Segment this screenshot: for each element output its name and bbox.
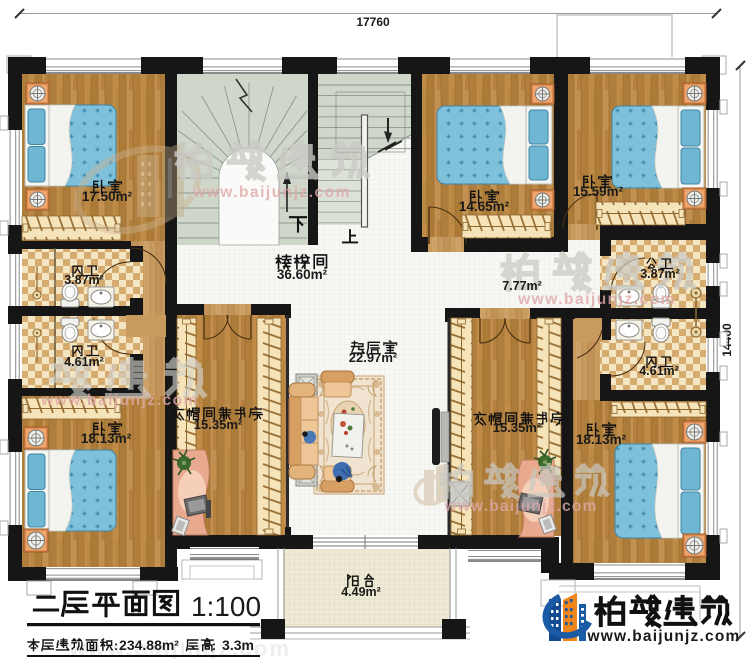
svg-text:22.97m²: 22.97m² — [349, 350, 398, 365]
svg-text:17760: 17760 — [356, 15, 390, 29]
svg-text:14.65m²: 14.65m² — [459, 199, 510, 214]
svg-text:www.baijunjz.com: www.baijunjz.com — [444, 498, 598, 515]
svg-text:3.3m: 3.3m — [222, 637, 254, 653]
svg-text:15.59m²: 15.59m² — [573, 184, 624, 199]
svg-text:www.baijunjz.com: www.baijunjz.com — [587, 628, 741, 645]
svg-text::: : — [212, 638, 216, 653]
svg-text:www.baijunjz.com: www.baijunjz.com — [40, 392, 199, 409]
svg-text:1:100: 1:100 — [191, 591, 261, 622]
svg-text:4.49m²: 4.49m² — [341, 585, 381, 599]
svg-text:www.baijunjz.com: www.baijunjz.com — [192, 184, 351, 201]
svg-text:4.61m²: 4.61m² — [64, 355, 104, 369]
svg-text:234.88m²: 234.88m² — [119, 637, 179, 653]
svg-text:17.50m²: 17.50m² — [82, 189, 133, 204]
svg-text:3.87m²: 3.87m² — [64, 273, 104, 287]
svg-text:4.61m²: 4.61m² — [639, 364, 679, 378]
svg-text:15.35m²: 15.35m² — [194, 417, 243, 432]
svg-text:3.87m²: 3.87m² — [640, 267, 680, 281]
svg-text:www.baijunjz.com: www.baijunjz.com — [517, 291, 676, 308]
svg-text::: : — [114, 638, 118, 653]
svg-text:18.13m²: 18.13m² — [576, 432, 627, 447]
svg-text:36.60m²: 36.60m² — [277, 267, 328, 282]
svg-text:18.13m²: 18.13m² — [81, 431, 132, 446]
svg-text:15.35m²: 15.35m² — [493, 420, 542, 435]
svg-text:7.77m²: 7.77m² — [502, 279, 542, 293]
